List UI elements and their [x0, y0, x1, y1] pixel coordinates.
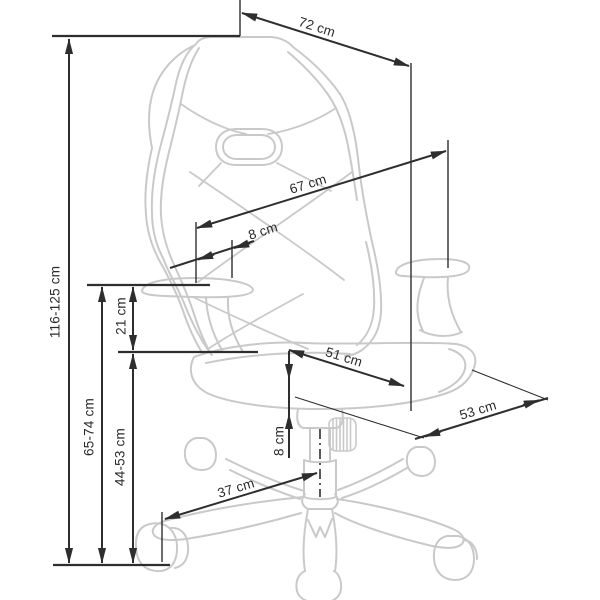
caster-rear-left — [185, 438, 216, 470]
dim-label-total-height: 116-125 cm — [48, 266, 63, 338]
dim-label-gas-lift-range: 8 cm — [272, 426, 287, 456]
armrest-right-support — [417, 277, 462, 336]
dim-label-armrest-height: 65-74 cm — [82, 398, 97, 456]
backrest-outline — [152, 37, 381, 356]
backrest-wing-right — [357, 242, 374, 345]
armrest-right-pad — [396, 259, 469, 277]
dimension-arrows — [69, 13, 548, 563]
base-leg-front — [304, 509, 337, 571]
chair-drawing — [136, 37, 477, 600]
headrest-hole-inner — [223, 135, 275, 159]
diagram-canvas — [0, 0, 600, 600]
caster-front — [296, 571, 341, 600]
base-leg-left — [153, 497, 303, 540]
dim-label-seat-height: 44-53 cm — [113, 428, 128, 486]
chair-dimension-diagram: 72 cm 67 cm 8 cm 51 cm 53 cm 21 cm 8 cm … — [0, 0, 600, 600]
base-leg-right — [335, 499, 464, 548]
dim-label-armrest-above-seat: 21 cm — [114, 297, 129, 335]
armrest-left-pad — [142, 278, 253, 297]
base-leg-rear-right — [338, 459, 407, 498]
caster-right — [434, 536, 477, 580]
caster-rear-right — [407, 447, 435, 476]
extension-lines — [162, 0, 548, 562]
